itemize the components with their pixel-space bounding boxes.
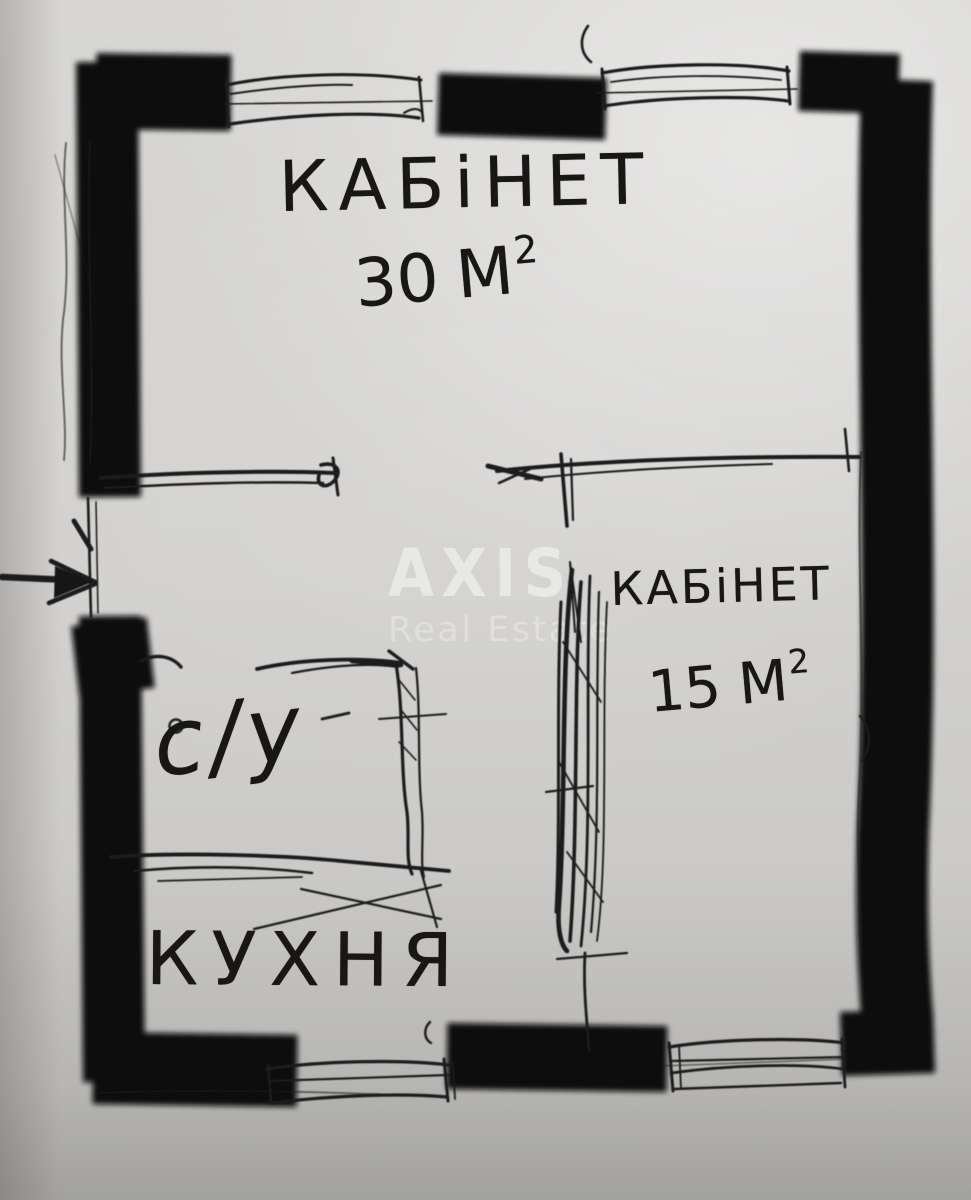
area-sup: 2 [512, 227, 540, 274]
divider-door-scribble [546, 562, 627, 1050]
window-top-left [222, 75, 432, 127]
area-value: 30 [351, 239, 441, 323]
room-area-office-15: 15М2 [646, 650, 811, 722]
area-unit: М [453, 232, 516, 314]
area-value: 15 [646, 654, 724, 726]
room-label-kitchen: КУХНЯ [145, 922, 466, 998]
interior-wall-right [488, 429, 859, 526]
entrance-door [74, 498, 98, 617]
room-label-office-30: КАБіНЕТ [278, 144, 654, 222]
floor-plan-sketch: AXIS Real Estate [0, 0, 971, 1200]
room-label-bathroom: с/у [148, 681, 312, 791]
room-area-office-30: 30М2 [352, 236, 540, 318]
area-sup: 2 [786, 641, 810, 682]
area-unit: М [736, 648, 791, 718]
room-label-office-15: КАБіНЕТ [610, 560, 832, 612]
entrance-arrow-icon [2, 561, 95, 603]
window-top-right [582, 26, 797, 109]
